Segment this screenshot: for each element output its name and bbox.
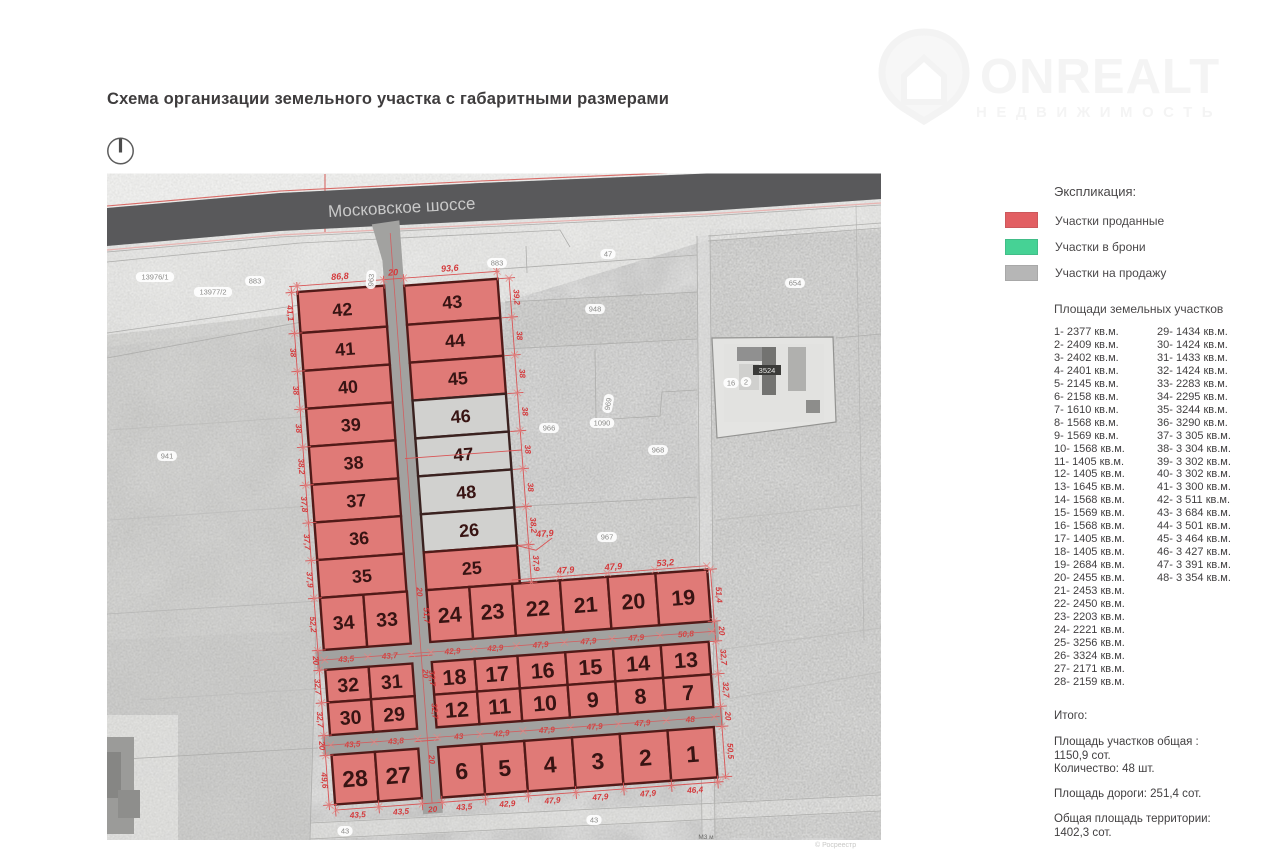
svg-text:12: 12 (444, 697, 470, 723)
svg-text:47,9: 47,9 (633, 718, 651, 728)
svg-text:47,9: 47,9 (585, 722, 603, 732)
svg-text:46,4: 46,4 (686, 785, 704, 795)
svg-text:16: 16 (530, 658, 556, 684)
svg-text:43: 43 (341, 827, 349, 836)
svg-text:968: 968 (652, 446, 665, 455)
svg-text:20: 20 (414, 586, 424, 597)
svg-text:1090: 1090 (594, 419, 611, 428)
svg-text:41: 41 (335, 339, 356, 360)
svg-text:941: 941 (161, 452, 174, 461)
svg-text:29: 29 (383, 703, 406, 727)
svg-text:13: 13 (673, 648, 699, 674)
svg-text:47,9: 47,9 (627, 633, 645, 643)
svg-text:37,8: 37,8 (299, 496, 309, 513)
svg-text:51,4: 51,4 (714, 586, 724, 603)
svg-text:43: 43 (453, 732, 464, 742)
svg-text:42,9: 42,9 (498, 799, 516, 809)
svg-text:41,1: 41,1 (285, 304, 295, 322)
svg-text:20: 20 (717, 625, 727, 636)
svg-text:47,9: 47,9 (543, 796, 561, 806)
svg-text:49,6: 49,6 (319, 771, 329, 789)
svg-text:44: 44 (444, 330, 465, 351)
svg-text:38: 38 (517, 369, 527, 379)
svg-text:2: 2 (744, 378, 748, 387)
svg-text:28: 28 (341, 765, 369, 793)
svg-text:46: 46 (450, 406, 471, 427)
svg-text:20: 20 (427, 805, 438, 815)
svg-text:39,2: 39,2 (511, 289, 521, 306)
svg-text:9: 9 (586, 688, 600, 713)
svg-text:52,2: 52,2 (308, 616, 318, 633)
svg-text:18: 18 (442, 665, 468, 691)
svg-text:38,2: 38,2 (296, 458, 306, 475)
svg-text:8: 8 (634, 684, 648, 709)
svg-text:47,9: 47,9 (555, 564, 574, 575)
svg-text:948: 948 (589, 305, 602, 314)
svg-text:38: 38 (520, 406, 530, 416)
svg-text:7: 7 (681, 681, 695, 706)
svg-text:93,6: 93,6 (441, 263, 460, 274)
svg-text:40: 40 (337, 376, 358, 397)
svg-text:43,5: 43,5 (348, 810, 366, 820)
svg-text:43,5: 43,5 (392, 807, 410, 817)
svg-text:32,7: 32,7 (429, 703, 439, 720)
svg-text:35: 35 (351, 566, 372, 587)
svg-text:24: 24 (437, 602, 463, 628)
svg-text:32,7: 32,7 (721, 681, 731, 698)
svg-text:27: 27 (385, 761, 412, 789)
svg-text:38: 38 (523, 444, 533, 454)
svg-text:47,9: 47,9 (531, 640, 549, 650)
svg-text:14: 14 (625, 651, 651, 677)
svg-text:М3 м: М3 м (698, 834, 714, 841)
svg-text:38: 38 (514, 331, 524, 341)
svg-text:47,9: 47,9 (535, 528, 554, 539)
svg-text:38: 38 (343, 452, 364, 473)
svg-text:43,8: 43,8 (387, 736, 405, 746)
svg-text:36: 36 (348, 528, 369, 549)
svg-text:50,8: 50,8 (678, 629, 695, 639)
svg-text:4: 4 (543, 751, 558, 778)
svg-text:19: 19 (670, 585, 696, 611)
svg-text:47,9: 47,9 (538, 725, 556, 735)
svg-text:53,2: 53,2 (656, 557, 674, 568)
svg-text:43,5: 43,5 (337, 654, 355, 664)
svg-text:34: 34 (332, 612, 355, 636)
svg-text:32,7: 32,7 (427, 670, 437, 687)
svg-text:966: 966 (543, 424, 556, 433)
svg-text:15: 15 (578, 655, 604, 681)
svg-text:38: 38 (526, 482, 536, 492)
svg-text:31: 31 (380, 671, 403, 695)
svg-text:21: 21 (573, 592, 599, 618)
svg-text:37,7: 37,7 (302, 534, 312, 551)
svg-text:32,7: 32,7 (718, 649, 728, 666)
svg-text:43: 43 (590, 816, 598, 825)
svg-text:38: 38 (294, 424, 304, 434)
svg-text:10: 10 (532, 691, 558, 717)
svg-text:37,9: 37,9 (305, 571, 315, 588)
svg-text:654: 654 (789, 279, 802, 288)
svg-text:33: 33 (375, 608, 398, 632)
svg-text:22: 22 (525, 596, 551, 622)
svg-text:37,9: 37,9 (531, 555, 541, 572)
svg-text:45: 45 (447, 368, 468, 389)
svg-text:47,9: 47,9 (591, 792, 609, 802)
svg-text:26: 26 (458, 520, 479, 541)
svg-text:25: 25 (461, 558, 482, 579)
svg-text:43,5: 43,5 (343, 739, 361, 749)
svg-text:17: 17 (484, 662, 510, 688)
svg-text:2: 2 (638, 744, 653, 771)
svg-text:43,5: 43,5 (455, 802, 473, 812)
svg-text:967: 967 (601, 533, 614, 542)
svg-text:39: 39 (340, 414, 361, 435)
svg-text:32,7: 32,7 (315, 711, 325, 728)
svg-text:47,9: 47,9 (603, 561, 622, 572)
svg-text:47,9: 47,9 (579, 636, 597, 646)
svg-text:883: 883 (249, 277, 262, 286)
svg-text:38: 38 (288, 348, 298, 358)
svg-text:3: 3 (590, 748, 605, 775)
svg-text:51,7: 51,7 (421, 607, 431, 624)
svg-text:11: 11 (487, 694, 511, 720)
svg-text:20: 20 (621, 589, 647, 615)
svg-text:42,9: 42,9 (486, 643, 504, 653)
svg-text:42: 42 (332, 299, 353, 320)
svg-text:47,9: 47,9 (639, 789, 657, 799)
svg-text:42,9: 42,9 (492, 728, 510, 738)
svg-text:86,8: 86,8 (331, 271, 349, 282)
svg-text:1: 1 (685, 741, 700, 768)
svg-text:16: 16 (727, 379, 735, 388)
svg-text:32: 32 (337, 674, 360, 698)
svg-text:883: 883 (491, 259, 504, 268)
svg-text:37: 37 (346, 490, 367, 511)
svg-text:47: 47 (604, 250, 612, 259)
svg-text:13976/1: 13976/1 (141, 273, 168, 282)
svg-text:23: 23 (480, 599, 506, 625)
svg-text:48: 48 (684, 715, 695, 725)
svg-text:38: 38 (291, 386, 301, 396)
svg-text:6: 6 (454, 758, 469, 785)
svg-text:43: 43 (442, 292, 463, 313)
svg-text:50,5: 50,5 (725, 743, 735, 760)
svg-text:32,7: 32,7 (312, 679, 322, 696)
svg-text:20: 20 (427, 754, 437, 765)
svg-text:13977/2: 13977/2 (199, 288, 226, 297)
svg-text:43,7: 43,7 (380, 651, 398, 661)
svg-text:20: 20 (723, 710, 733, 721)
svg-text:30: 30 (339, 706, 362, 730)
svg-text:48: 48 (456, 482, 477, 503)
svg-text:5: 5 (497, 754, 512, 781)
svg-text:963: 963 (366, 273, 376, 286)
svg-text:3524: 3524 (759, 366, 776, 375)
svg-text:42,9: 42,9 (443, 646, 461, 656)
